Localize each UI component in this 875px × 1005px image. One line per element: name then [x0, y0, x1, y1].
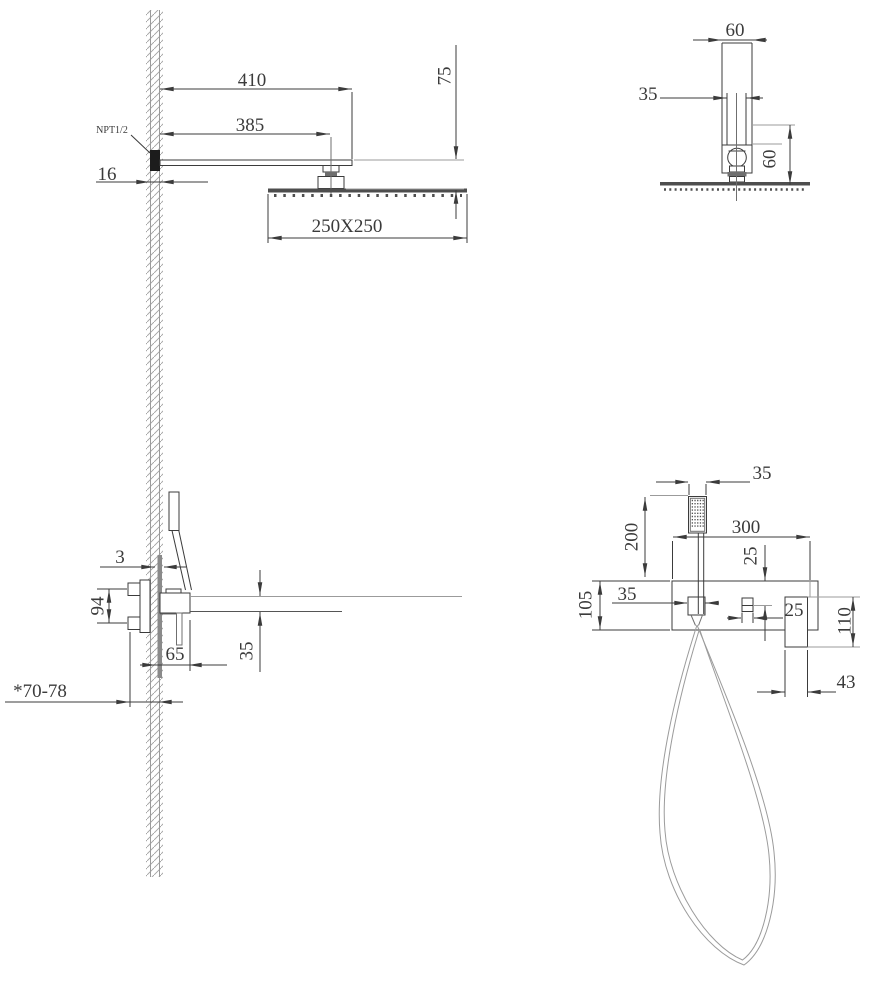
flange-height-label: 60 — [760, 150, 781, 169]
wall-gap-label: 3 — [115, 547, 125, 568]
hand-shower-length-label: 200 — [622, 523, 643, 552]
dim-385-label: 385 — [236, 115, 265, 136]
wall — [146, 10, 163, 877]
hose-inner — [664, 629, 770, 960]
inwall-valve-body — [140, 580, 150, 633]
hose-outer — [659, 625, 775, 965]
handle-width-label: 25 — [785, 600, 804, 621]
valve-body — [160, 593, 190, 613]
port-bottom — [128, 617, 140, 630]
head-size-label: 250X250 — [312, 216, 383, 237]
lever-arm-back — [179, 531, 192, 591]
dim-410-label: 410 — [238, 70, 267, 91]
lever-arm-front — [172, 531, 186, 591]
arm-width-label: 35 — [639, 84, 658, 105]
mixer-handle-front — [742, 598, 753, 612]
embed-depth-label: *70-78 — [13, 681, 67, 702]
trim-plate-edge — [158, 555, 163, 678]
npt-label: NPT1/2 — [96, 125, 128, 136]
npt-fitting — [150, 150, 160, 171]
view-mixer-front: 35 200 300 25 105 35 25 110 43 — [576, 463, 861, 965]
technical-drawing: 410 385 75 16 NPT1/2 250X250 — [0, 0, 875, 1000]
handle-mount-step — [166, 589, 181, 593]
dim-35-hand-shower — [656, 482, 750, 495]
body-depth-label: 65 — [166, 644, 185, 665]
hand-shower-width-label: 35 — [753, 463, 772, 484]
shower-arm — [160, 160, 352, 166]
port-top — [128, 583, 140, 596]
hose-outlet-stub — [177, 613, 183, 645]
dim-43 — [757, 650, 836, 697]
spout-width-label: 43 — [837, 672, 856, 693]
plate-height-label: 105 — [576, 591, 597, 620]
shower-plate-front — [660, 182, 810, 186]
spout-height-label: 35 — [237, 642, 258, 661]
port-spacing-label: 94 — [88, 596, 109, 616]
view-valve-side: 3 94 65 *70-78 35 — [5, 492, 462, 707]
dim-75-label: 75 — [435, 67, 456, 86]
holder-width-label: 35 — [618, 584, 637, 605]
spout-drop-label: 110 — [835, 607, 856, 635]
flange-width-label: 60 — [726, 20, 745, 41]
wall-hatch — [146, 10, 163, 877]
drawing-page: 410 385 75 16 NPT1/2 250X250 — [0, 0, 875, 1000]
dim-16-label: 16 — [98, 164, 117, 185]
handle-offset-label: 25 — [741, 547, 762, 566]
hand-shower-head — [689, 497, 707, 534]
view-shower-head-front: 60 35 60 — [639, 20, 811, 201]
lever-grip — [169, 492, 179, 531]
plate-width-label: 300 — [732, 517, 761, 538]
